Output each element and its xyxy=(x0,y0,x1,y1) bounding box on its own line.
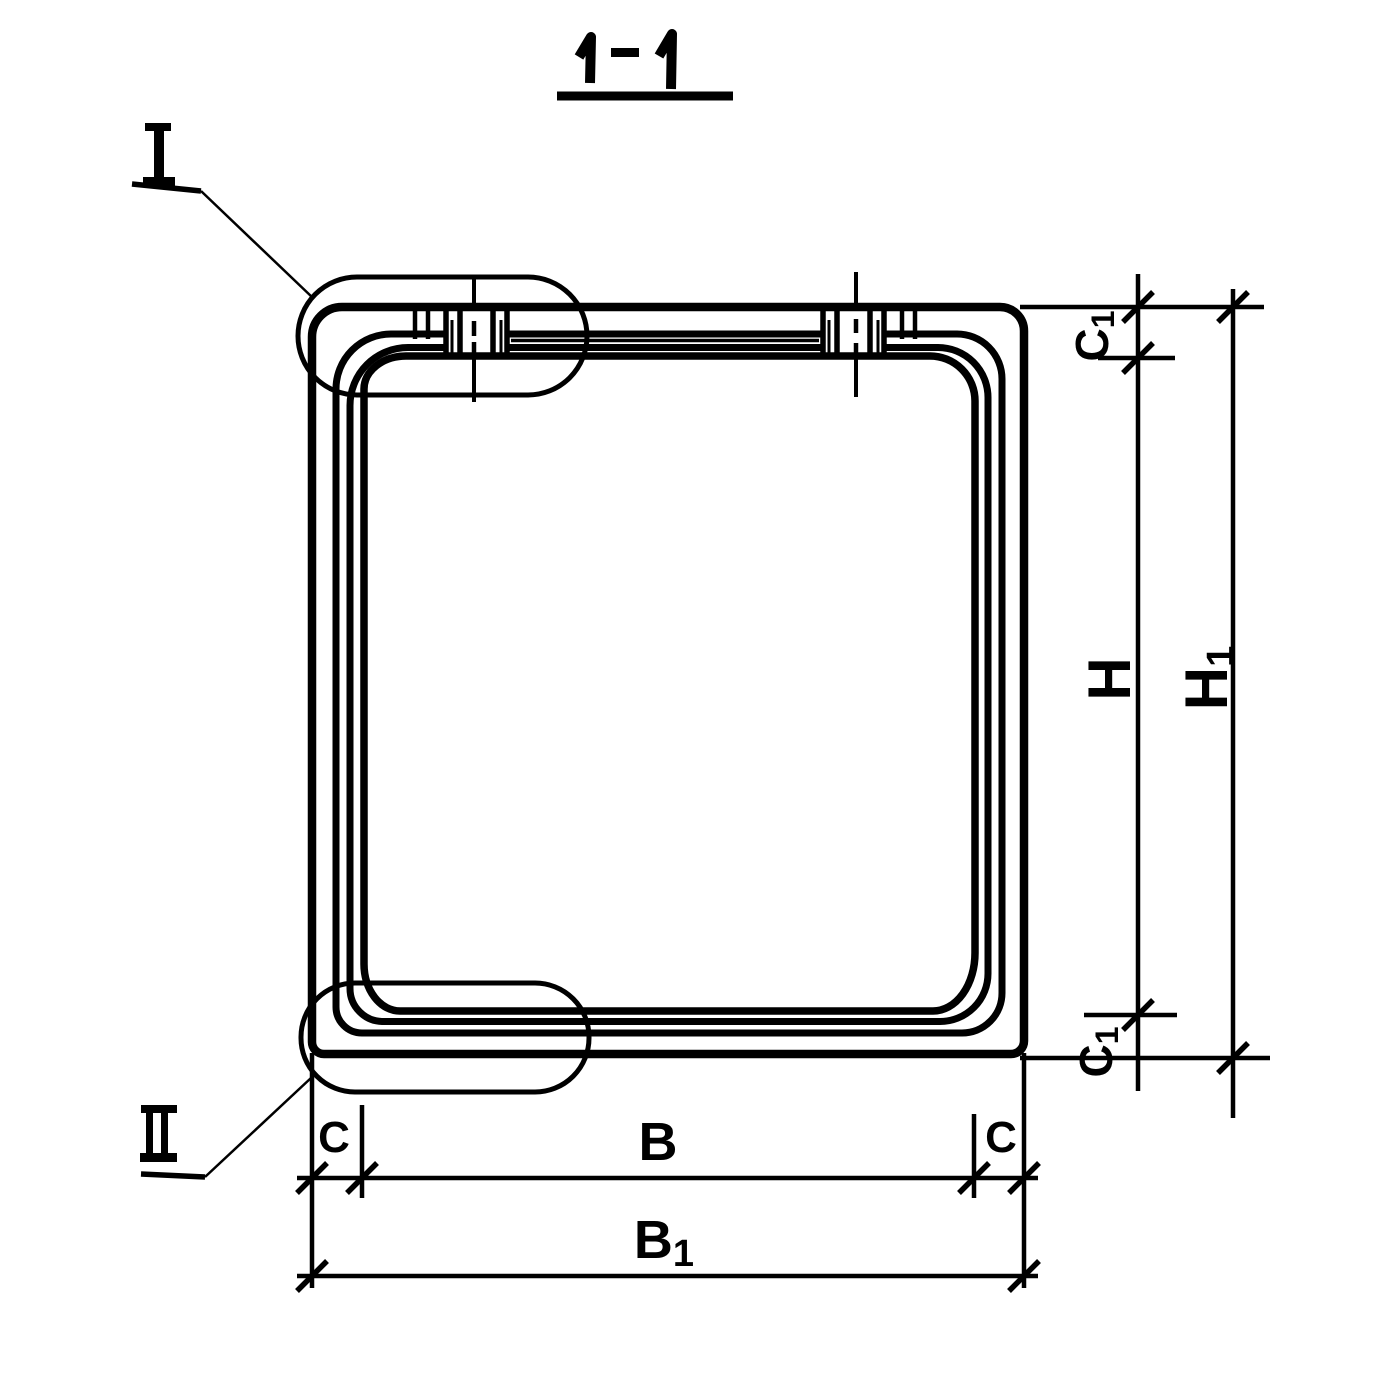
svg-text:C: C xyxy=(985,1113,1017,1162)
svg-text:C: C xyxy=(318,1113,350,1162)
svg-text:H: H xyxy=(1076,657,1143,700)
svg-text:B: B xyxy=(639,1112,678,1172)
